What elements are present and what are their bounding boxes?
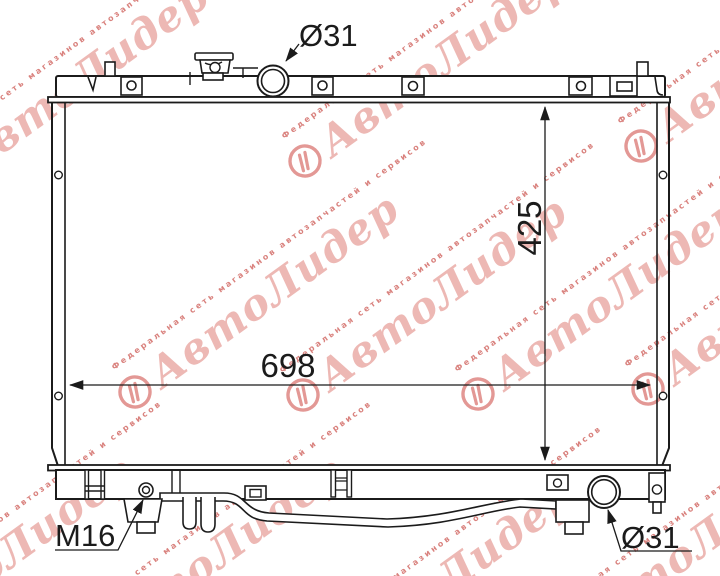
callout-bottom-port: Ø31 <box>608 510 692 555</box>
callout-top-port: Ø31 <box>286 18 358 61</box>
top-bracket-4 <box>569 77 592 95</box>
top-tab-right <box>637 62 648 76</box>
dimension-height: 425 <box>511 107 548 460</box>
outlet-tube-2 <box>201 497 215 532</box>
top-bracket-1 <box>121 77 142 95</box>
top-port-label: Ø31 <box>299 18 358 53</box>
top-bracket-3 <box>402 77 424 95</box>
bottom-bracket-right <box>649 473 665 513</box>
left-side-tank <box>52 102 65 466</box>
width-label: 698 <box>260 347 315 384</box>
dimension-width: 698 <box>70 347 650 385</box>
top-tank <box>48 62 670 103</box>
catalog-drawing-page: Федеральная сеть магазинов автозапчастей… <box>0 0 720 576</box>
bottom-clip <box>245 486 266 500</box>
top-clip <box>610 76 637 96</box>
height-label: 425 <box>511 200 548 255</box>
radiator-line-drawing: 425 698 Ø31 M16 Ø31 <box>0 0 720 576</box>
right-side-tank <box>657 102 669 466</box>
filler-neck <box>258 66 289 97</box>
bottom-tank <box>48 465 670 534</box>
top-tab-left <box>105 62 115 76</box>
drain-plug-label: M16 <box>55 518 115 553</box>
top-bracket-2 <box>312 77 333 95</box>
bottom-port-label: Ø31 <box>621 520 680 555</box>
bottom-bracket-1 <box>547 475 568 490</box>
outlet-tube-1 <box>183 497 196 529</box>
